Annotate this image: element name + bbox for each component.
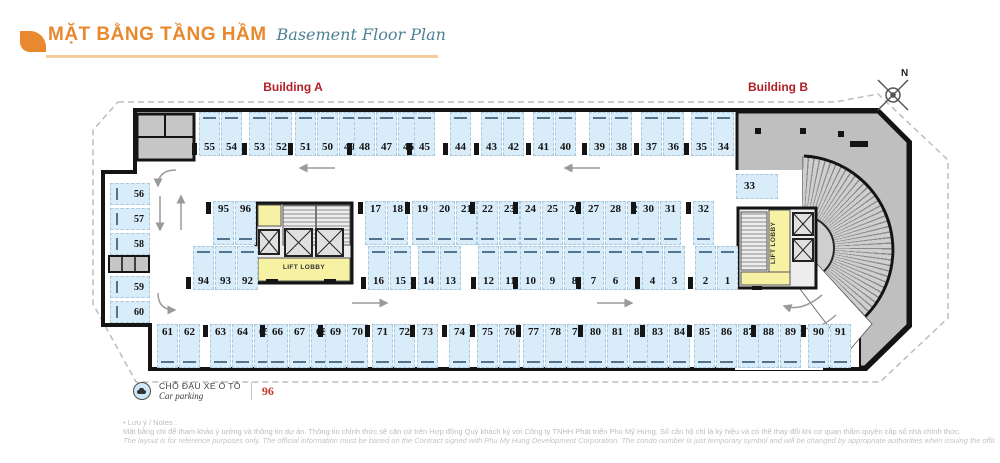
parking-bumper-line (503, 361, 516, 363)
parking-bumper-line (695, 117, 708, 119)
parking-spot-number: 55 (204, 142, 215, 153)
parking-spot-number: 84 (674, 327, 685, 338)
parking-spot-6: 6 (605, 246, 626, 290)
parking-spot-number: 89 (785, 327, 796, 338)
parking-spot-56: 56 (110, 183, 150, 205)
parking-spot-58: 58 (110, 233, 150, 255)
parking-group: 565758 (110, 183, 150, 258)
parking-spot-30: 30 (638, 201, 659, 245)
building-a-lift-lobby-label: LIFT LOBBY (262, 264, 346, 271)
parking-spot-number: 54 (226, 142, 237, 153)
parking-spot-number: 70 (352, 327, 363, 338)
parking-group: 5554 (199, 112, 243, 156)
parking-spot-number: 9 (550, 276, 556, 287)
parking-bumper-line (416, 238, 429, 240)
parking-bumper-line (299, 117, 312, 119)
parking-spot-54: 54 (221, 112, 242, 156)
parking-spot-number: 64 (237, 327, 248, 338)
parking-group: 4342 (481, 112, 525, 156)
parking-spot-number: 96 (240, 204, 251, 215)
parking-spot-number: 50 (322, 142, 333, 153)
parking-spot-number: 75 (482, 327, 493, 338)
parking-bumper-line (438, 238, 451, 240)
parking-group: 3938 (589, 112, 633, 156)
parking-spot-13: 13 (440, 246, 461, 290)
parking-spot-number: 12 (483, 276, 494, 287)
parking-bumper-line (358, 117, 371, 119)
parking-spot-16: 16 (368, 246, 389, 290)
parking-spot-number: 37 (646, 142, 657, 153)
parking-spot-number: 38 (616, 142, 627, 153)
parking-spot-95: 95 (213, 201, 234, 245)
parking-spot-47: 47 (376, 112, 397, 156)
parking-bumper-line (421, 361, 434, 363)
parking-spot-31: 31 (660, 201, 681, 245)
parking-group: 32 (693, 201, 715, 245)
parking-spot-45: 45 (414, 112, 435, 156)
parking-spot-60: 60 (110, 301, 150, 323)
parking-spot-71: 71 (372, 324, 393, 368)
parking-bumper-line (587, 238, 600, 240)
building-b-lift-lobby-label: LIFT LOBBY (770, 216, 789, 270)
parking-group: 3031 (638, 201, 682, 245)
parking-spot-number: 19 (417, 204, 428, 215)
parking-spot-27: 27 (583, 201, 604, 245)
parking-bumper-line (460, 238, 473, 240)
parking-spot-number: 59 (134, 282, 144, 293)
parking-spot-42: 42 (503, 112, 524, 156)
parking-spot-number: 88 (763, 327, 774, 338)
parking-spot-75: 75 (477, 324, 498, 368)
parking-spot-90: 90 (808, 324, 829, 368)
parking-spot-number: 43 (486, 142, 497, 153)
parking-spot-39: 39 (589, 112, 610, 156)
parking-bumper-line (646, 251, 659, 253)
parking-spot-number: 27 (588, 204, 599, 215)
parking-spot-number: 39 (594, 142, 605, 153)
parking-spot-number: 83 (652, 327, 663, 338)
parking-spot-number: 86 (721, 327, 732, 338)
parking-spot-24: 24 (520, 201, 541, 245)
parking-spot-number: 41 (538, 142, 549, 153)
parking-spot-number: 15 (395, 276, 406, 287)
parking-spot-69: 69 (325, 324, 346, 368)
parking-bumper-line (482, 251, 495, 253)
legend-count: 96 (262, 384, 274, 399)
parking-spot-number: 91 (835, 327, 846, 338)
parking-group: 9091 (808, 324, 852, 368)
parking-spot-number: 22 (482, 204, 493, 215)
parking-spot-number: 67 (294, 327, 305, 338)
parking-bumper-line (507, 117, 520, 119)
parking-spot-2: 2 (695, 246, 716, 290)
parking-bumper-line (161, 361, 174, 363)
parking-spot-number: 35 (696, 142, 707, 153)
parking-spot-number: 20 (439, 204, 450, 215)
parking-spot-22: 22 (477, 201, 498, 245)
parking-group: 192021 (412, 201, 478, 245)
parking-spot-number: 77 (528, 327, 539, 338)
parking-bumper-line (418, 117, 431, 119)
parking-bumper-line (241, 251, 254, 253)
parking-bumper-line (742, 361, 755, 363)
parking-spot-number: 56 (134, 189, 144, 200)
parking-spot-17: 17 (365, 201, 386, 245)
parking-spot-44: 44 (450, 112, 471, 156)
parking-group: 44 (450, 112, 472, 156)
parking-spot-59: 59 (110, 276, 150, 298)
parking-spot-35: 35 (691, 112, 712, 156)
parking-bumper-line (587, 251, 600, 253)
legend-label-en: Car parking (159, 391, 241, 401)
parking-spot-number: 6 (613, 276, 619, 287)
parking-spot-number: 2 (703, 276, 709, 287)
parking-bumper-line (589, 361, 602, 363)
parking-spot-number: 18 (392, 204, 403, 215)
notes: • Lưu ý / Notes : Mặt bằng chỉ để tham k… (123, 418, 995, 445)
parking-bumper-line (546, 238, 559, 240)
parking-spot-36: 36 (663, 112, 684, 156)
parking-spot-14: 14 (418, 246, 439, 290)
parking-spot-33: 33 (736, 174, 778, 199)
parking-spot-number: 69 (330, 327, 341, 338)
parking-group: 5960 (110, 276, 150, 326)
parking-group: 7576 (477, 324, 521, 368)
parking-spot-number: 40 (560, 142, 571, 153)
parking-bumper-line (376, 361, 389, 363)
parking-bumper-line (369, 238, 382, 240)
parking-group: 3736 (641, 112, 685, 156)
parking-spot-number: 36 (668, 142, 679, 153)
parking-spot-92: 92 (237, 246, 258, 290)
parking-spot-86: 86 (716, 324, 737, 368)
parking-spot-40: 40 (555, 112, 576, 156)
parking-bumper-line (697, 238, 710, 240)
legend-divider (251, 382, 252, 400)
parking-bumper-line (568, 238, 581, 240)
parking-spot-1: 1 (717, 246, 738, 290)
parking-spot-19: 19 (412, 201, 433, 245)
parking-spot-7: 7 (583, 246, 604, 290)
parking-spot-number: 73 (422, 327, 433, 338)
parking-spot-10: 10 (520, 246, 541, 290)
parking-spot-number: 45 (419, 142, 430, 153)
parking-spot-number: 93 (220, 276, 231, 287)
parking-spot-number: 92 (242, 276, 253, 287)
parking-spot-number: 30 (643, 204, 654, 215)
parking-group: 1615 (368, 246, 412, 290)
parking-bumper-line (503, 238, 516, 240)
parking-bumper-line (611, 361, 624, 363)
parking-bumper-line (293, 361, 306, 363)
parking-bumper-line (329, 361, 342, 363)
notes-vietnamese: Mặt bằng chỉ để tham khảo ý tưởng và thô… (123, 427, 995, 436)
parking-spot-number: 81 (612, 327, 623, 338)
parking-bumper-line (219, 251, 232, 253)
parking-group: 21 (695, 246, 739, 290)
parking-bumper-line (633, 361, 646, 363)
parking-spot-50: 50 (317, 112, 338, 156)
parking-group: 74 (449, 324, 471, 368)
parking-spot-number: 16 (373, 276, 384, 287)
parking-spot-number: 1 (725, 276, 731, 287)
parking-spot-number: 3 (672, 276, 678, 287)
parking-group: 9596 (213, 201, 257, 245)
parking-bumper-line (271, 361, 284, 363)
parking-spot-53: 53 (249, 112, 270, 156)
parking-spot-number: 76 (504, 327, 515, 338)
parking-spot-number: 63 (215, 327, 226, 338)
parking-spot-4: 4 (642, 246, 663, 290)
parking-spot-8: 8 (564, 246, 585, 290)
parking-spot-number: 17 (370, 204, 381, 215)
parking-spot-number: 42 (508, 142, 519, 153)
parking-spot-number: 66 (272, 327, 283, 338)
parking-spot-88: 88 (758, 324, 779, 368)
parking-spot-number: 10 (525, 276, 536, 287)
parking-bumper-line (351, 361, 364, 363)
parking-bumper-line (391, 238, 404, 240)
parking-bumper-line (651, 361, 664, 363)
parking-bumper-line (559, 117, 572, 119)
parking-bumper-line (116, 238, 118, 250)
parking-bumper-line (214, 361, 227, 363)
parking-spot-61: 61 (157, 324, 178, 368)
parking-spot-83: 83 (647, 324, 668, 368)
parking-group: 5352 (249, 112, 293, 156)
parking-spot-number: 90 (813, 327, 824, 338)
parking-group: 6970 (325, 324, 369, 368)
parking-spot-55: 55 (199, 112, 220, 156)
parking-bumper-line (762, 361, 775, 363)
parking-spot-67: 67 (289, 324, 310, 368)
parking-bumper-line (197, 251, 210, 253)
parking-bumper-line (116, 306, 118, 318)
parking-bumper-line (504, 251, 517, 253)
legend: CHỖ ĐẬU XE Ô TÔ Car parking 96 (133, 381, 274, 401)
parking-spot-number: 78 (550, 327, 561, 338)
parking-bumper-line (593, 117, 606, 119)
parking-spot-number: 53 (254, 142, 265, 153)
parking-bumper-line (664, 238, 677, 240)
parking-spot-number: 61 (162, 327, 173, 338)
parking-spot-12: 12 (478, 246, 499, 290)
parking-spot-26: 26 (564, 201, 585, 245)
parking-group: 1413 (418, 246, 462, 290)
parking-spot-15: 15 (390, 246, 411, 290)
parking-spot-number: 4 (650, 276, 656, 287)
parking-bumper-line (571, 361, 584, 363)
parking-bumper-line (698, 361, 711, 363)
parking-group: 45 (414, 112, 436, 156)
parking-spot-number: 52 (276, 142, 287, 153)
parking-spot-number: 28 (610, 204, 621, 215)
parking-bumper-line (225, 117, 238, 119)
parking-spot-number: 47 (381, 142, 392, 153)
parking-bumper-line (422, 251, 435, 253)
parking-spot-80: 80 (585, 324, 606, 368)
parking-bumper-line (720, 361, 733, 363)
parking-spot-64: 64 (232, 324, 253, 368)
parking-spot-32: 32 (693, 201, 714, 245)
parking-spot-34: 34 (713, 112, 734, 156)
parking-spot-number: 31 (665, 204, 676, 215)
parking-bumper-line (667, 117, 680, 119)
parking-bumper-line (372, 251, 385, 253)
parking-spot-73: 73 (417, 324, 438, 368)
parking-bumper-line (116, 281, 118, 293)
parking-bumper-line (398, 361, 411, 363)
parking-spot-number: 48 (359, 142, 370, 153)
parking-bumper-line (524, 238, 537, 240)
parking-bumper-line (217, 238, 230, 240)
parking-bumper-line (275, 117, 288, 119)
parking-bumper-line (203, 117, 216, 119)
parking-spot-77: 77 (523, 324, 544, 368)
parking-bumper-line (784, 361, 797, 363)
parking-group: 4140 (533, 112, 577, 156)
parking-spot-number: 24 (525, 204, 536, 215)
parking-spot-number: 74 (454, 327, 465, 338)
parking-spot-41: 41 (533, 112, 554, 156)
parking-spot-number: 94 (198, 276, 209, 287)
parking-bumper-line (609, 251, 622, 253)
parking-bumper-line (549, 361, 562, 363)
parking-spot-number: 95 (218, 204, 229, 215)
parking-group: 666768 (267, 324, 333, 368)
parking-spot-91: 91 (830, 324, 851, 368)
parking-group: 73 (417, 324, 439, 368)
parking-spot-38: 38 (611, 112, 632, 156)
parking-bumper-line (546, 251, 559, 253)
parking-group: 6162 (157, 324, 201, 368)
parking-bumper-line (615, 117, 628, 119)
parking-spot-number: 85 (699, 327, 710, 338)
parking-spot-number: 72 (399, 327, 410, 338)
parking-bumper-line (537, 117, 550, 119)
parking-spot-78: 78 (545, 324, 566, 368)
parking-spot-25: 25 (542, 201, 563, 245)
parking-bumper-line (812, 361, 825, 363)
parking-spot-number: 62 (184, 327, 195, 338)
parking-bumper-line (642, 238, 655, 240)
parking-spot-number: 25 (547, 204, 558, 215)
parking-spot-number: 34 (718, 142, 729, 153)
parking-bumper-line (236, 361, 249, 363)
parking-bumper-line (239, 238, 252, 240)
parking-spot-85: 85 (694, 324, 715, 368)
parking-spot-63: 63 (210, 324, 231, 368)
parking-spot-number: 51 (300, 142, 311, 153)
parking-spot-number: 33 (744, 181, 755, 192)
parking-spot-number: 60 (134, 307, 144, 318)
parking-group: 8889 (758, 324, 802, 368)
parking-bumper-line (668, 251, 681, 253)
parking-bumper-line (116, 188, 118, 200)
parking-bumper-line (453, 361, 466, 363)
parking-group: 33 (736, 174, 779, 199)
parking-spot-81: 81 (607, 324, 628, 368)
parking-bumper-line (834, 361, 847, 363)
parking-spot-3: 3 (664, 246, 685, 290)
parking-bumper-line (717, 117, 730, 119)
parking-spot-9: 9 (542, 246, 563, 290)
parking-bumper-line (485, 117, 498, 119)
parking-spot-number: 80 (590, 327, 601, 338)
parking-spot-94: 94 (193, 246, 214, 290)
parking-bumper-line (253, 117, 266, 119)
parking-spot-62: 62 (179, 324, 200, 368)
parking-bumper-line (699, 251, 712, 253)
parking-spot-96: 96 (235, 201, 256, 245)
parking-spot-89: 89 (780, 324, 801, 368)
parking-group: 3534 (691, 112, 735, 156)
parking-spot-number: 32 (698, 204, 709, 215)
parking-bumper-line (568, 251, 581, 253)
parking-bumper-line (380, 117, 393, 119)
parking-spot-57: 57 (110, 208, 150, 230)
parking-spot-number: 7 (591, 276, 597, 287)
parking-bumper-line (481, 238, 494, 240)
parking-bumper-line (524, 251, 537, 253)
parking-spot-74: 74 (449, 324, 470, 368)
notes-heading: • Lưu ý / Notes : (123, 418, 995, 427)
parking-spot-51: 51 (295, 112, 316, 156)
parking-group: 8384 (647, 324, 691, 368)
parking-spot-28: 28 (605, 201, 626, 245)
basement-floor-plan-page: MẶT BẰNG TẦNG HẦM Basement Floor Plan Bu… (0, 0, 1000, 463)
parking-bumper-line (183, 361, 196, 363)
car-icon (133, 382, 151, 400)
parking-spot-43: 43 (481, 112, 502, 156)
parking-group: 1718 (365, 201, 409, 245)
parking-group: 43 (642, 246, 686, 290)
parking-bumper-line (394, 251, 407, 253)
parking-spot-number: 71 (377, 327, 388, 338)
parking-spot-37: 37 (641, 112, 662, 156)
parking-bumper-line (527, 361, 540, 363)
parking-spot-number: 58 (134, 239, 144, 250)
parking-bumper-line (673, 361, 686, 363)
parking-bumper-line (721, 251, 734, 253)
notes-english: The layout is for reference purposes onl… (123, 436, 995, 445)
parking-bumper-line (481, 361, 494, 363)
parking-bumper-line (645, 117, 658, 119)
parking-bumper-line (444, 251, 457, 253)
parking-spot-20: 20 (434, 201, 455, 245)
parking-spot-number: 14 (423, 276, 434, 287)
parking-bumper-line (609, 238, 622, 240)
parking-spot-number: 13 (445, 276, 456, 287)
parking-spot-66: 66 (267, 324, 288, 368)
parking-bumper-line (454, 117, 467, 119)
parking-bumper-line (116, 213, 118, 225)
parking-spot-number: 44 (455, 142, 466, 153)
parking-spot-93: 93 (215, 246, 236, 290)
parking-spot-48: 48 (354, 112, 375, 156)
parking-bumper-line (321, 117, 334, 119)
parking-group: 949392 (193, 246, 259, 290)
parking-spot-number: 57 (134, 214, 144, 225)
legend-label-vi: CHỖ ĐẬU XE Ô TÔ (159, 381, 241, 391)
